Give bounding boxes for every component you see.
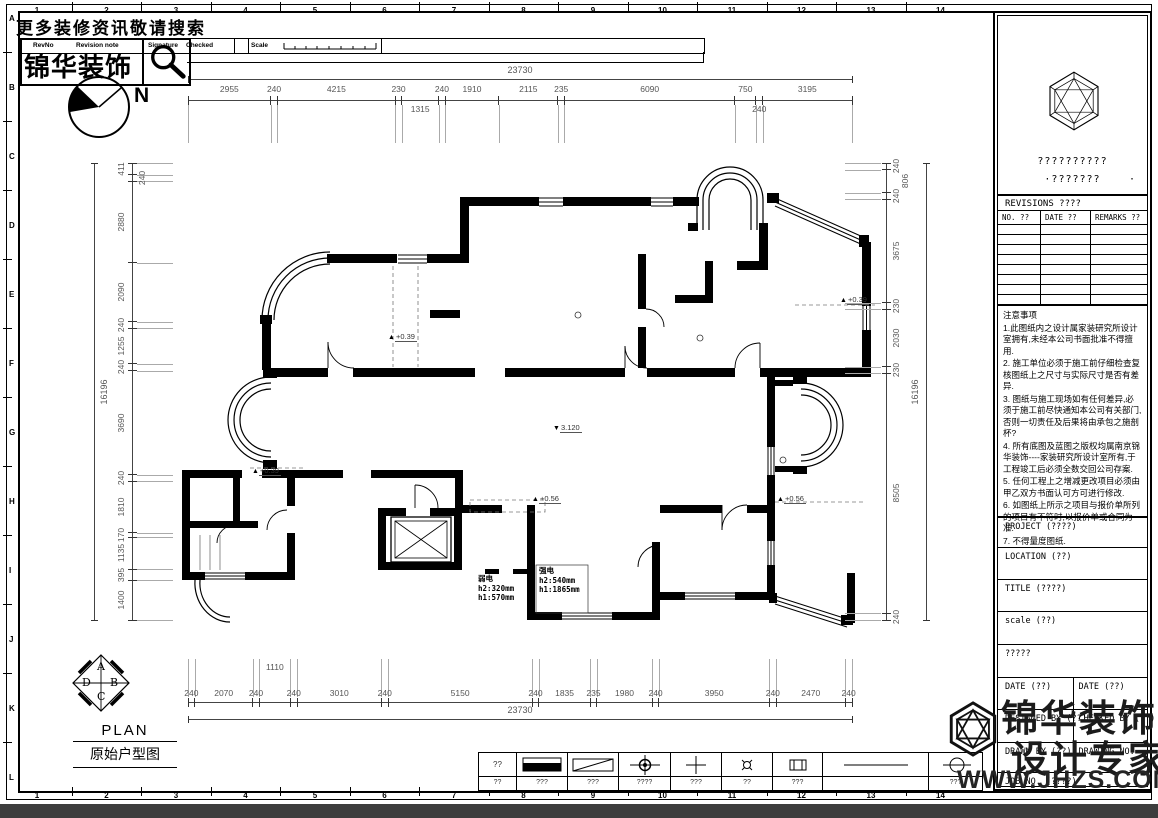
cross-mark-icon <box>673 754 719 776</box>
strong-current-label: 强电 h2:540mm h1:1865mm <box>539 566 580 595</box>
level-triangle-icon: ▼ <box>553 425 560 432</box>
drawing-sheet: 2955240421523013152401910211523560907502… <box>0 0 1158 818</box>
lamp-symbol-icon <box>724 754 770 776</box>
magnifier-cell <box>142 40 191 84</box>
legend-table: ?? ?? ??? ??? ???? ??? ?? ??? <box>478 752 983 791</box>
diamond-letter-a: A <box>97 660 105 673</box>
line-mark-icon <box>826 754 926 776</box>
level-marker: ▲+0.56 <box>532 494 561 503</box>
level-marker: ▲+0.56 <box>777 494 806 503</box>
level-triangle-icon: ▲ <box>777 496 784 503</box>
legend-item-wall: ??? <box>516 753 567 790</box>
legend-item-column-axis: ???? <box>618 753 670 790</box>
north-label: N <box>134 84 149 108</box>
scale-bar <box>283 42 378 51</box>
level-marker: ▼3.120 <box>553 423 582 432</box>
legend-item-line <box>822 753 928 790</box>
legend-item: ?? ?? <box>479 753 516 790</box>
diamond-letter-c: C <box>97 690 105 703</box>
level-triangle-icon: ▲ <box>840 297 847 304</box>
legend-item-lamp: ?? <box>721 753 772 790</box>
level-marker: ▲+0.39 <box>252 466 281 475</box>
brand-website: WWW.JHZS.COM <box>957 766 1158 795</box>
wall-symbol-icon <box>519 754 565 776</box>
scale-label: Scale <box>251 42 268 49</box>
search-banner-text: 更多装修资讯敬请搜索 <box>16 14 206 39</box>
orientation-diamond: A B C D <box>70 652 132 714</box>
level-triangle-icon: ▲ <box>532 496 539 503</box>
diamond-letter-b: B <box>110 676 118 689</box>
legend-item-switch-box: ??? <box>772 753 822 790</box>
company-logo-text: 锦华装饰 <box>24 47 132 84</box>
magnifier-icon <box>147 42 189 82</box>
legend-item-window: ??? <box>567 753 618 790</box>
level-marker: ▲+0.39 <box>388 332 417 341</box>
weak-current-label: 弱电 h2:320mm h1:570mm <box>478 574 514 603</box>
switch-box-icon <box>775 754 821 776</box>
window-symbol-icon <box>570 754 616 776</box>
diamond-letter-d: D <box>82 676 91 689</box>
level-triangle-icon: ▲ <box>388 334 395 341</box>
strip-second-row <box>187 52 704 63</box>
column-axis-icon <box>622 754 668 776</box>
company-logo-box: 锦华装饰 <box>20 38 191 86</box>
legend-item-cross: ??? <box>670 753 721 790</box>
brand-cube-icon <box>944 696 1002 762</box>
level-triangle-icon: ▲ <box>252 468 259 475</box>
level-marker: ▲+0.39 <box>840 295 869 304</box>
